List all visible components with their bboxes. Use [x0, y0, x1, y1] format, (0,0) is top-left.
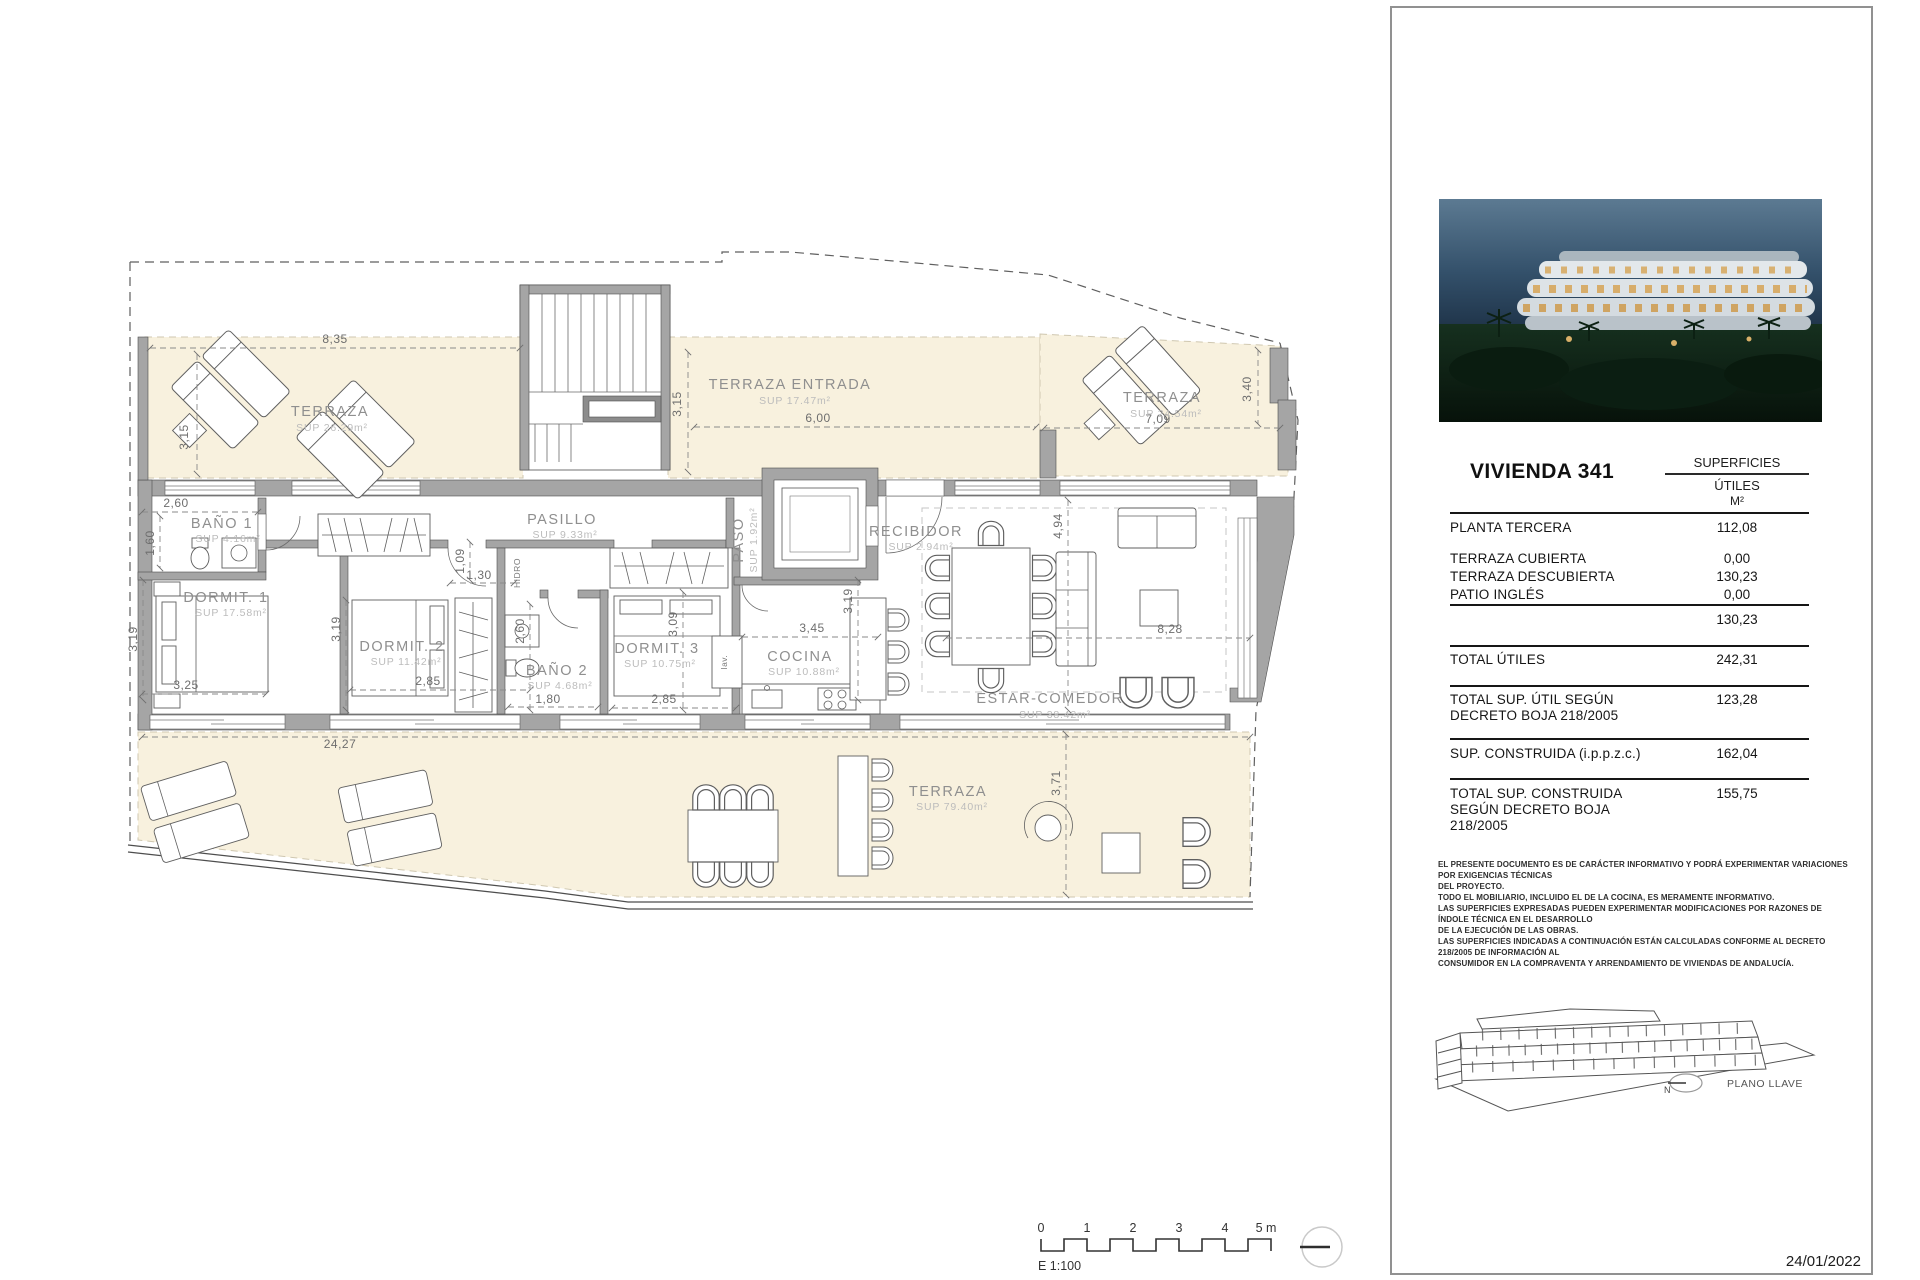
staircase — [520, 285, 670, 470]
row-label: PLANTA TERCERA — [1450, 520, 1665, 536]
table-rule — [1450, 778, 1809, 780]
sup-paso: SUP 1.92m² — [748, 508, 760, 573]
dim-319b: 3,19 — [329, 616, 343, 641]
row-label: TOTAL SUP. ÚTIL SEGÚN DECRETO BOJA 218/2… — [1450, 692, 1665, 724]
info-panel: VIVIENDA 341 SUPERFICIES ÚTILES M² PLANT… — [1390, 6, 1873, 1275]
row-value: 112,08 — [1665, 520, 1809, 535]
dim-130: 1,30 — [466, 568, 491, 582]
table-rule — [1450, 645, 1809, 647]
row-value: 0,00 — [1665, 551, 1809, 566]
dim-285a: 2,85 — [415, 674, 440, 688]
sup-terraza-entrada: SUP 17.47m² — [759, 395, 831, 407]
scale-tick-0: 0 — [1038, 1221, 1045, 1235]
living-room — [1056, 508, 1196, 708]
building-render — [1517, 251, 1815, 330]
label-hidro: HIDRO — [512, 558, 522, 588]
dim-160: 1,60 — [143, 530, 157, 555]
disclaimer-line: DE LA EJECUCIÓN DE LAS OBRAS. — [1438, 925, 1850, 936]
sup-bano-2: SUP 4.68m² — [528, 680, 593, 692]
disclaimer-line: CONSUMIDOR EN LA COMPRAVENTA Y ARRENDAMI… — [1438, 958, 1850, 969]
label-cocina: COCINA — [767, 649, 832, 665]
sup-terraza-1: SUP 26.29m² — [296, 422, 368, 434]
scale-tick-1: 1 — [1084, 1221, 1091, 1235]
wardrobe-1 — [318, 514, 430, 556]
sup-bano-1: SUP 4.16m² — [196, 533, 261, 545]
dim-345: 3,45 — [799, 621, 824, 635]
label-terraza-1: TERRAZA — [291, 404, 369, 420]
dim-835: 8,35 — [322, 332, 347, 346]
label-bano-1: BAÑO 1 — [191, 515, 253, 532]
dim-285b: 2,85 — [651, 692, 676, 706]
sup-terraza-3: SUP 79.40m² — [916, 801, 988, 813]
label-bano-2: BAÑO 2 — [526, 662, 588, 679]
row-value: 123,28 — [1665, 692, 1809, 707]
label-recibidor: RECIBIDOR — [869, 524, 963, 540]
scale-bar: 0 1 2 3 4 5 m E 1:100 — [1038, 1221, 1342, 1273]
dim-315b: 3,15 — [670, 391, 684, 416]
disclaimer: EL PRESENTE DOCUMENTO ES DE CARÁCTER INF… — [1438, 859, 1850, 969]
disclaimer-line: LAS SUPERFICIES EXPRESADAS PUEDEN EXPERI… — [1438, 903, 1850, 925]
row-label: TOTAL ÚTILES — [1450, 652, 1665, 668]
dim-260b: 2,60 — [513, 618, 527, 643]
label-dormit-2: DORMIT. 2 — [359, 639, 444, 655]
label-dormit-3: DORMIT. 3 — [614, 641, 699, 657]
unit-title: VIVIENDA 341 — [1447, 460, 1637, 484]
scale-label: E 1:100 — [1038, 1259, 1081, 1273]
row-label: TERRAZA DESCUBIERTA — [1450, 569, 1665, 585]
row-value: 162,04 — [1665, 746, 1809, 761]
sup-terraza-2: SUP 24.54m² — [1130, 408, 1202, 420]
label-terraza-3: TERRAZA — [909, 784, 987, 800]
wardrobe-2 — [455, 598, 492, 712]
sup-estar-comedor: SUP 38.42m² — [1019, 709, 1091, 721]
north-indicator — [1300, 1227, 1342, 1267]
row-label: TERRAZA CUBIERTA — [1450, 551, 1665, 567]
label-paso: PASO — [731, 517, 747, 562]
dim-260a: 2,60 — [163, 496, 188, 510]
building-photo — [1439, 199, 1822, 422]
dim-325: 3,25 — [173, 678, 198, 692]
table-header-unit: M² — [1665, 494, 1809, 508]
sup-cocina: SUP 10.88m² — [768, 666, 840, 678]
disclaimer-line: DEL PROYECTO. — [1438, 881, 1850, 892]
plan-sheet: { "document": { "date": "24/01/2022" }, … — [0, 0, 1920, 1280]
row-value: 0,00 — [1665, 587, 1809, 602]
dim-180: 1,80 — [535, 692, 560, 706]
disclaimer-line: EL PRESENTE DOCUMENTO ES DE CARÁCTER INF… — [1438, 859, 1850, 881]
wardrobe-3 — [610, 548, 728, 588]
disclaimer-line: LAS SUPERFICIES INDICADAS A CONTINUACIÓN… — [1438, 936, 1850, 958]
label-dormit-1: DORMIT. 1 — [183, 590, 268, 606]
label-terraza-2: TERRAZA — [1123, 390, 1201, 406]
table-rule — [1450, 738, 1809, 740]
date: 24/01/2022 — [1786, 1253, 1861, 1270]
row-value: 155,75 — [1665, 786, 1809, 801]
dim-319a: 3,19 — [126, 626, 140, 651]
table-rule — [1450, 685, 1809, 687]
label-estar-comedor: ESTAR-COMEDOR — [976, 691, 1123, 707]
disclaimer-line: TODO EL MOBILIARIO, INCLUIDO EL DE LA CO… — [1438, 892, 1850, 903]
north-label: N — [1664, 1085, 1671, 1095]
sup-dormit-3: SUP 10.75m² — [624, 658, 696, 670]
dim-315a: 3,15 — [177, 424, 191, 449]
table-header-col: ÚTILES — [1665, 478, 1809, 493]
sup-dormit-1: SUP 17.58m² — [195, 607, 267, 619]
label-pasillo: PASILLO — [527, 512, 597, 528]
dim-371: 3,71 — [1049, 770, 1063, 795]
dim-600: 6,00 — [805, 411, 830, 425]
dim-494: 4,94 — [1051, 513, 1065, 538]
table-rule — [1450, 512, 1809, 514]
scale-tick-2: 2 — [1130, 1221, 1137, 1235]
scale-tick-5: 5 m — [1256, 1221, 1277, 1235]
sup-recibidor: SUP 2.94m² — [889, 541, 954, 553]
dim-340: 3,40 — [1240, 376, 1254, 401]
dim-309: 3,09 — [666, 611, 680, 636]
sup-dormit-2: SUP 11.42m² — [371, 656, 442, 668]
dim-319c: 3,19 — [841, 588, 855, 613]
key-plan-label: PLANO LLAVE — [1727, 1078, 1803, 1090]
table-rule — [1450, 604, 1809, 606]
row-label: SUP. CONSTRUIDA (i.p.p.z.c.) — [1450, 746, 1665, 762]
key-plan: N PLANO LLAVE — [1422, 1003, 1852, 1208]
row-label: PATIO INGLÉS — [1450, 587, 1665, 603]
scale-tick-4: 4 — [1222, 1221, 1229, 1235]
row-value: 130,23 — [1665, 569, 1809, 584]
row-label: TOTAL SUP. CONSTRUIDA SEGÚN DECRETO BOJA… — [1450, 786, 1665, 834]
dim-828: 8,28 — [1157, 622, 1182, 636]
scale-tick-3: 3 — [1176, 1221, 1183, 1235]
dim-109: 1,09 — [453, 548, 467, 573]
header-underline — [1665, 473, 1809, 475]
table-header-group: SUPERFICIES — [1665, 455, 1809, 470]
sup-pasillo: SUP 9.33m² — [533, 529, 598, 541]
row-value: 130,23 — [1665, 612, 1809, 627]
label-lav: lav. — [719, 655, 729, 670]
dim-2427: 24,27 — [324, 737, 357, 751]
row-value: 242,31 — [1665, 652, 1809, 667]
label-terraza-entrada: TERRAZA ENTRADA — [709, 377, 872, 393]
